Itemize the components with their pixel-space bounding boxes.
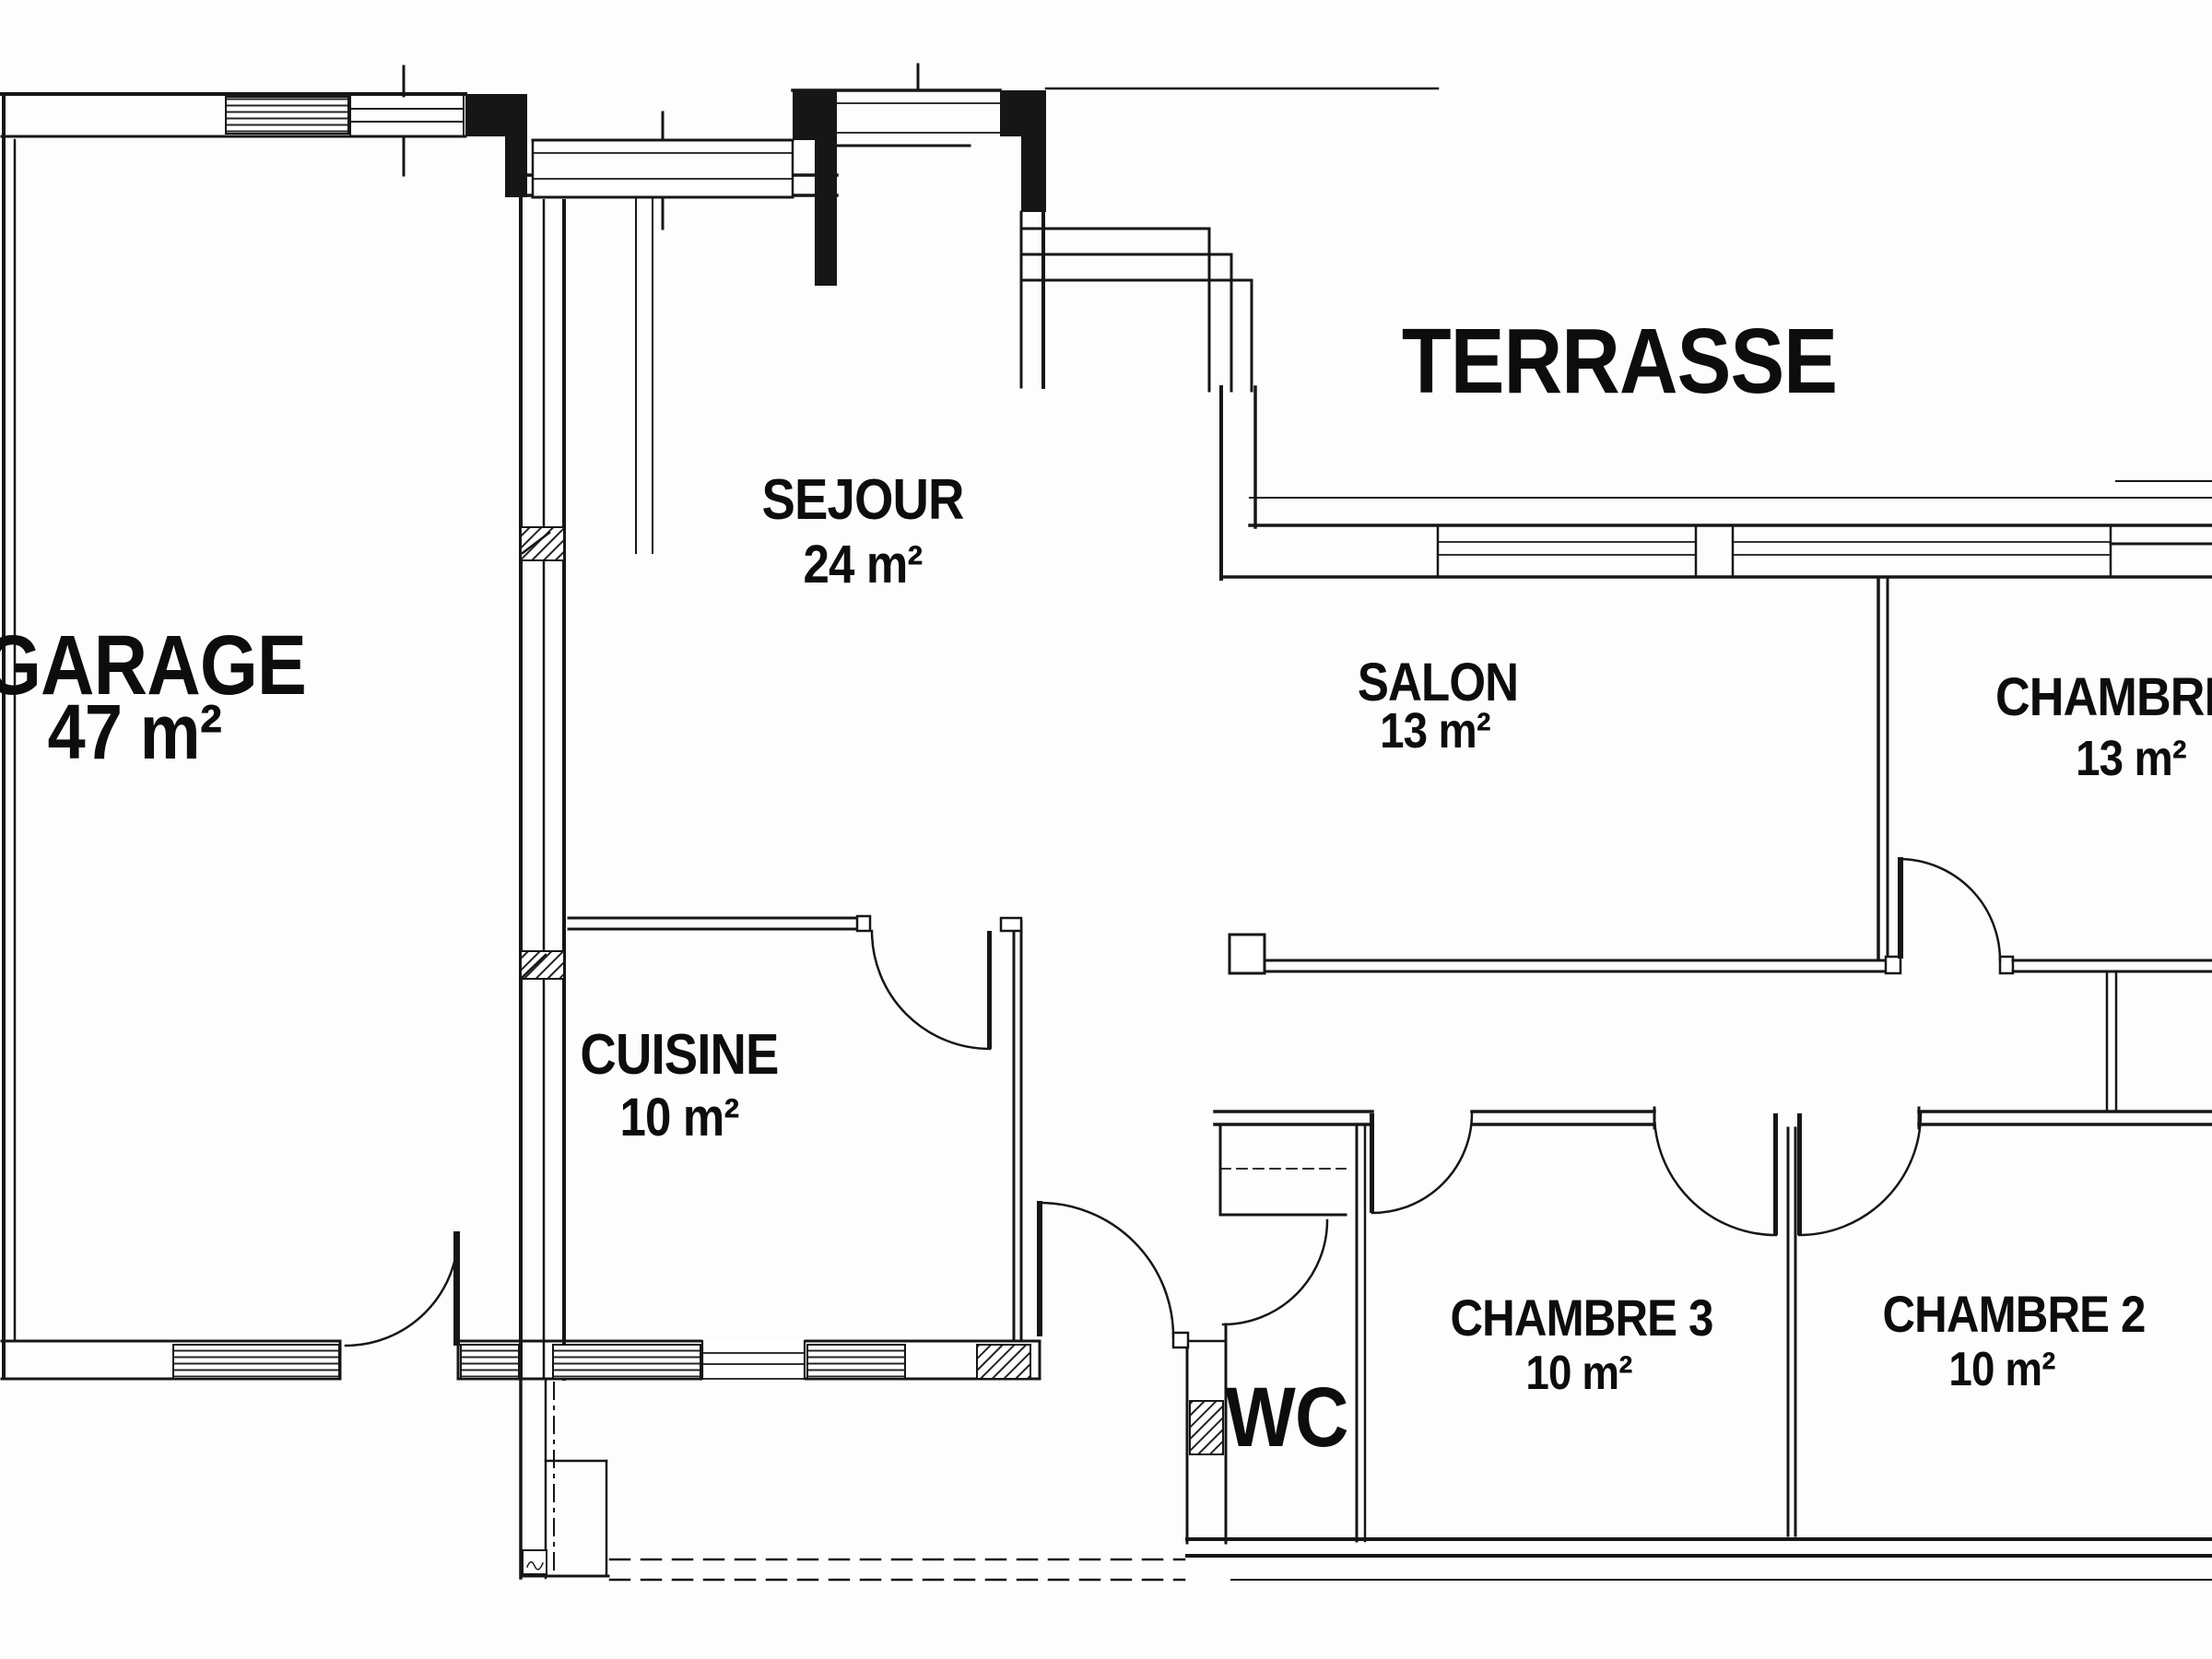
room-label-sejour: SEJOUR — [761, 472, 963, 529]
room-area: 47 m² — [48, 693, 222, 771]
room-name: CHAMBRE 3 — [1450, 1292, 1712, 1344]
bottom-wall-center — [521, 1339, 1040, 1382]
room-area: 10 m² — [1948, 1346, 2054, 1394]
room-label-chambre3: CHAMBRE 3 — [1450, 1292, 1712, 1344]
room-label-wc: WC — [1225, 1375, 1347, 1460]
chambre2-door — [1797, 1113, 1921, 1235]
room-area-chambre3: 10 m² — [1525, 1349, 1631, 1397]
entrance-door — [1037, 1201, 1188, 1347]
room-name: CHAMBRE — [1995, 671, 2212, 724]
room-name: CUISINE — [580, 1027, 778, 1084]
room-area-sejour: 24 m² — [804, 538, 923, 592]
room-label-chambre2: CHAMBRE 2 — [1882, 1288, 2145, 1340]
wc-walls — [1187, 1124, 1365, 1543]
room-area: 13 m² — [1380, 706, 1490, 756]
room-name: WC — [1225, 1375, 1347, 1460]
chambre3-door — [1654, 1113, 1778, 1235]
chambre3-west-door — [1370, 1113, 1472, 1213]
room-label-cuisine: CUISINE — [580, 1027, 778, 1084]
room-label-chambre1: CHAMBRE — [1995, 671, 2212, 724]
room-area-chambre1: 13 m² — [2076, 734, 2186, 783]
room-name: SALON — [1358, 656, 1518, 710]
room-area-chambre2: 10 m² — [1948, 1346, 2054, 1394]
garage-door — [346, 1231, 460, 1346]
room-area: 24 m² — [804, 538, 923, 592]
terrasse-walls — [1221, 387, 2212, 579]
room-area: 10 m² — [1525, 1349, 1631, 1397]
room-area-garage: 47 m² — [48, 693, 222, 771]
room-label-terrasse: TERRASSE — [1402, 315, 1837, 407]
room-name: TERRASSE — [1402, 315, 1837, 407]
chambre1-door — [1898, 857, 2000, 960]
porch — [521, 1379, 1184, 1580]
room-area: 13 m² — [2076, 734, 2186, 783]
salon-bottom-wall — [1230, 935, 2212, 1112]
sejour-top-wall — [521, 65, 1438, 553]
salon-chambre-partition — [1878, 579, 1888, 959]
room-area: 10 m² — [620, 1091, 739, 1145]
spine-wall — [521, 140, 564, 1379]
room-name: CHAMBRE 2 — [1882, 1288, 2145, 1340]
room-area-salon: 13 m² — [1380, 706, 1490, 756]
room-area-cuisine: 10 m² — [620, 1091, 739, 1145]
floor-plan-page: GARAGE 47 m² SEJOUR 24 m² TERRASSE SALON… — [0, 0, 2212, 1659]
room-name: SEJOUR — [761, 472, 963, 529]
floor-plan-drawing — [0, 0, 2212, 1659]
bottom-wall-east — [1187, 1539, 2212, 1580]
room-label-salon: SALON — [1358, 656, 1518, 710]
